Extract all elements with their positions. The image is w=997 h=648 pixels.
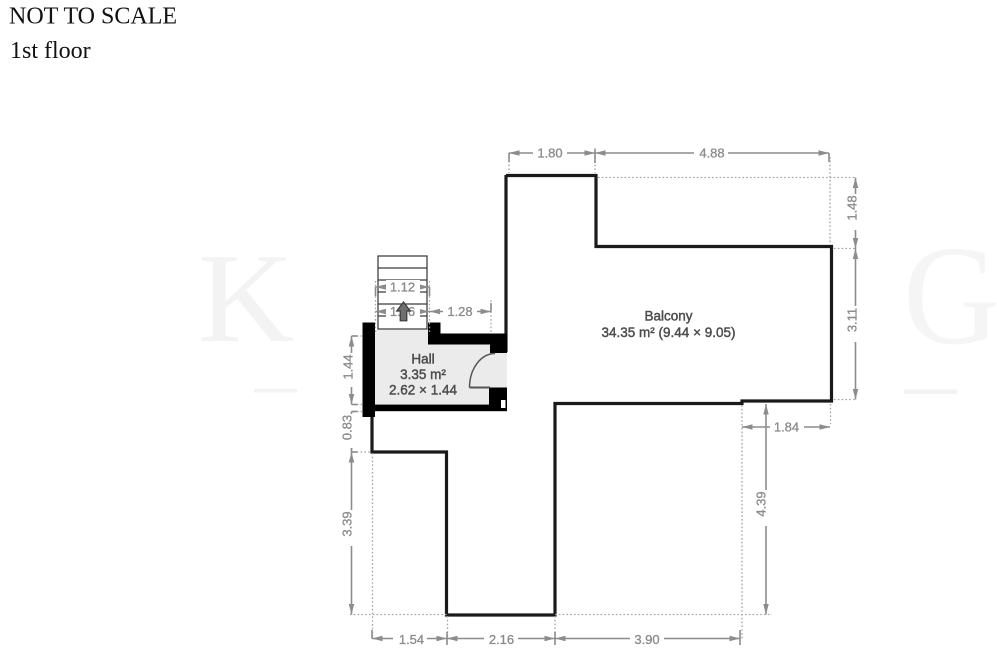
svg-text:1.48: 1.48 — [845, 195, 860, 220]
svg-text:1.80: 1.80 — [537, 146, 562, 161]
svg-text:2.62 × 1.44: 2.62 × 1.44 — [389, 383, 457, 398]
svg-text:3.90: 3.90 — [634, 632, 659, 647]
svg-text:1.28: 1.28 — [447, 304, 472, 319]
svg-text:3.35 m²: 3.35 m² — [400, 367, 446, 382]
svg-text:1.84: 1.84 — [774, 420, 799, 435]
svg-text:Hall: Hall — [411, 352, 434, 367]
svg-text:3.11: 3.11 — [845, 308, 860, 332]
svg-text:1.54: 1.54 — [399, 632, 424, 647]
svg-text:4.39: 4.39 — [754, 491, 769, 516]
svg-text:1.44: 1.44 — [341, 354, 356, 379]
svg-text:4.88: 4.88 — [699, 146, 724, 161]
svg-text:Balcony: Balcony — [644, 309, 692, 324]
svg-text:34.35 m² (9.44 × 9.05): 34.35 m² (9.44 × 9.05) — [602, 325, 736, 340]
svg-text:0.83: 0.83 — [340, 415, 355, 440]
svg-text:G: G — [903, 216, 997, 374]
svg-text:K: K — [198, 227, 294, 369]
svg-text:2.16: 2.16 — [489, 632, 514, 647]
svg-text:NOT TO SCALE: NOT TO SCALE — [9, 4, 177, 30]
svg-text:1.12: 1.12 — [390, 280, 415, 295]
svg-text:1st floor: 1st floor — [10, 38, 91, 64]
svg-text:3.39: 3.39 — [340, 511, 355, 536]
